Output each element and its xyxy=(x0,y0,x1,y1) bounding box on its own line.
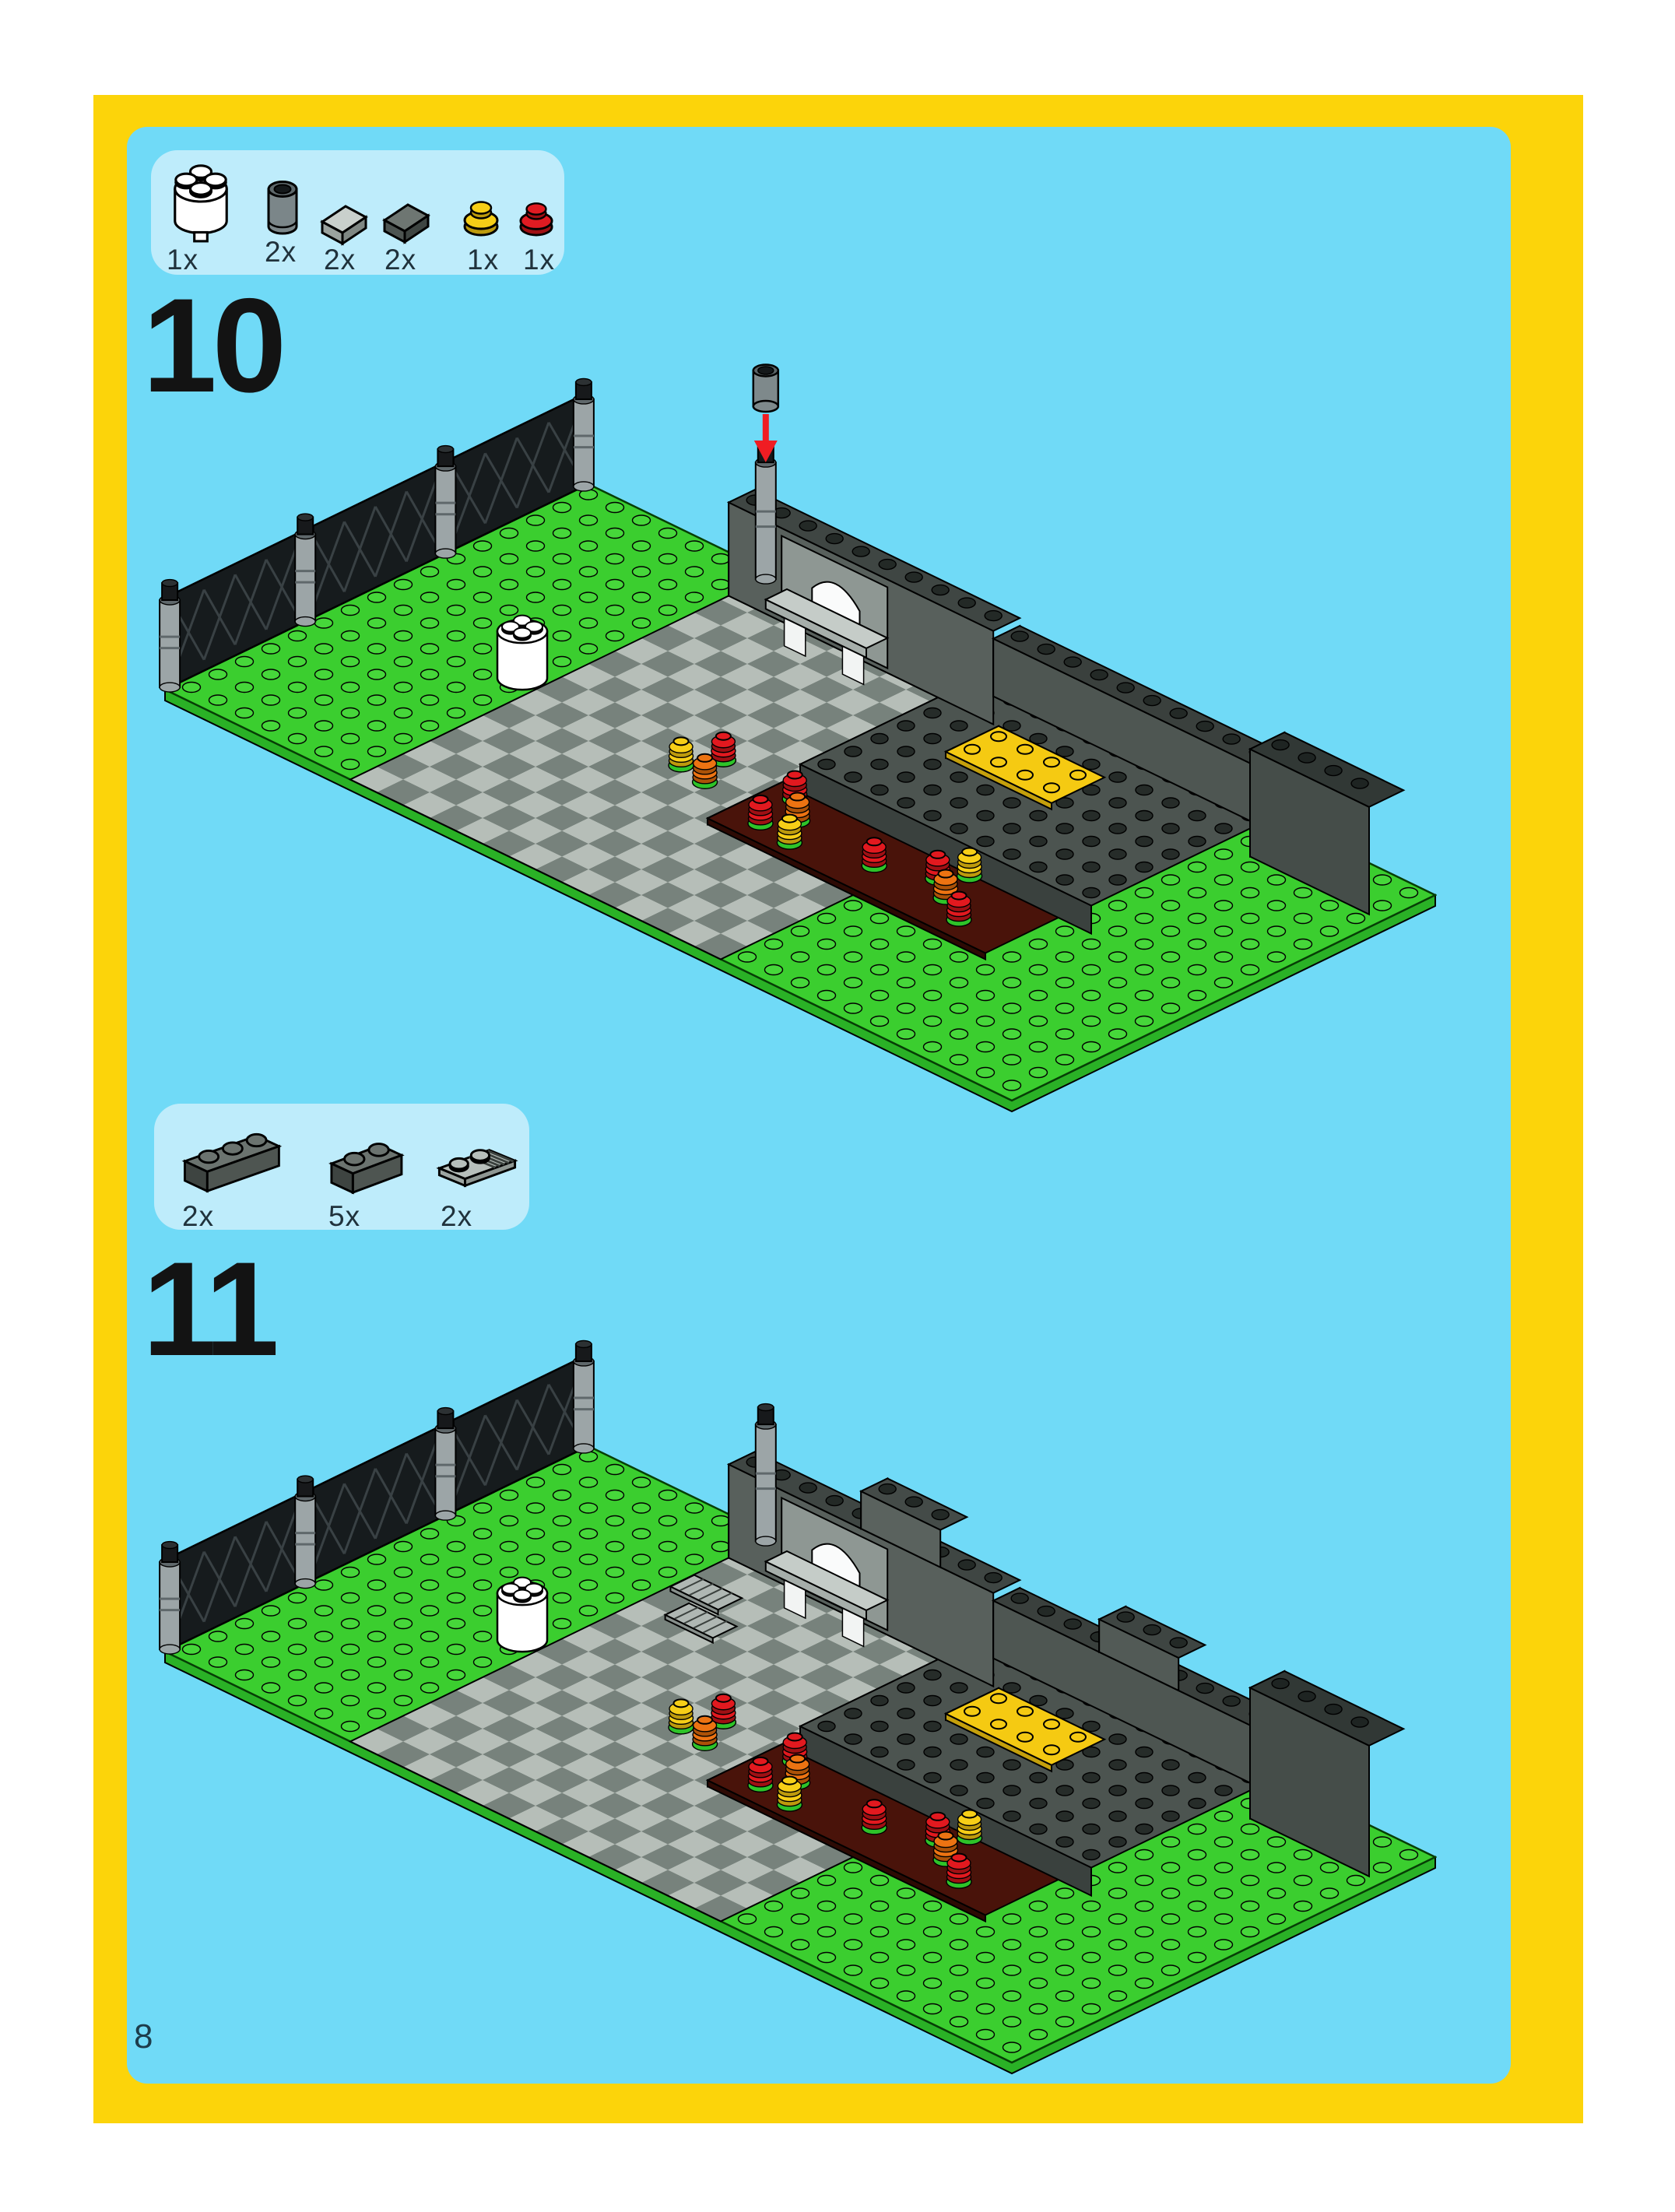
part-count: 2x xyxy=(265,237,297,266)
part-count: 2x xyxy=(182,1202,214,1231)
part-count: 2x xyxy=(441,1202,472,1231)
white-round-brick-2x2-icon xyxy=(163,160,238,248)
part-count: 2x xyxy=(385,245,416,274)
light-gray-slope-1x1-icon xyxy=(316,198,372,251)
red-round-plate-1x1-icon xyxy=(518,195,554,243)
dark-gray-brick-1x3-icon xyxy=(174,1122,286,1201)
dark-gray-brick-1x2-icon xyxy=(319,1129,408,1203)
part-count: 1x xyxy=(467,245,499,274)
step-10-illustration xyxy=(129,336,1437,1115)
part-count: 1x xyxy=(523,245,555,274)
step-10-parts-box: 1x 2x 2x 2x xyxy=(151,150,564,275)
step-11-parts-box: 2x 5x xyxy=(154,1104,529,1230)
yellow-round-plate-1x1-icon xyxy=(462,194,500,243)
light-gray-grille-plate-1x2-icon xyxy=(431,1141,523,1199)
part-count: 2x xyxy=(324,245,356,274)
part-count: 5x xyxy=(328,1202,360,1231)
part-count: 1x xyxy=(167,245,198,274)
instruction-page: 1x 2x 2x 2x xyxy=(0,0,1675,2212)
dark-gray-round-brick-1x1-icon xyxy=(262,175,304,244)
dark-gray-slope-1x1-icon xyxy=(378,197,434,249)
page-number: 8 xyxy=(134,2017,153,2056)
step-11-illustration xyxy=(129,1298,1437,2077)
